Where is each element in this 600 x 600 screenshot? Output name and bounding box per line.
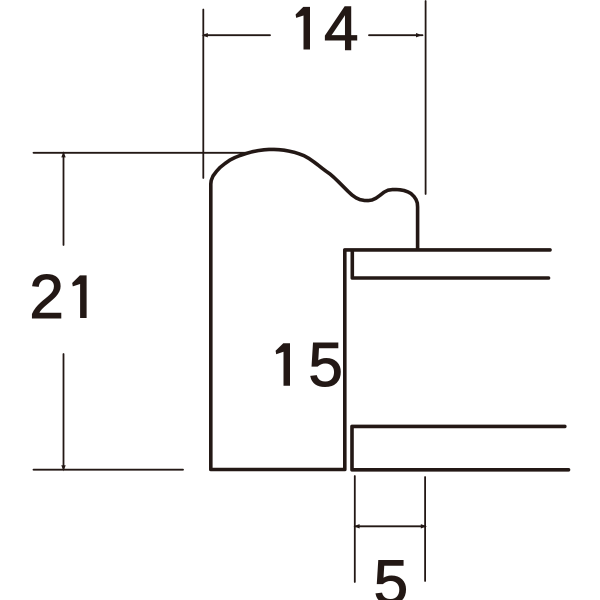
svg-text:5: 5 — [374, 549, 408, 600]
svg-text:5: 5 — [308, 331, 342, 400]
svg-text:4: 4 — [324, 0, 358, 63]
svg-text:2: 2 — [29, 263, 63, 332]
